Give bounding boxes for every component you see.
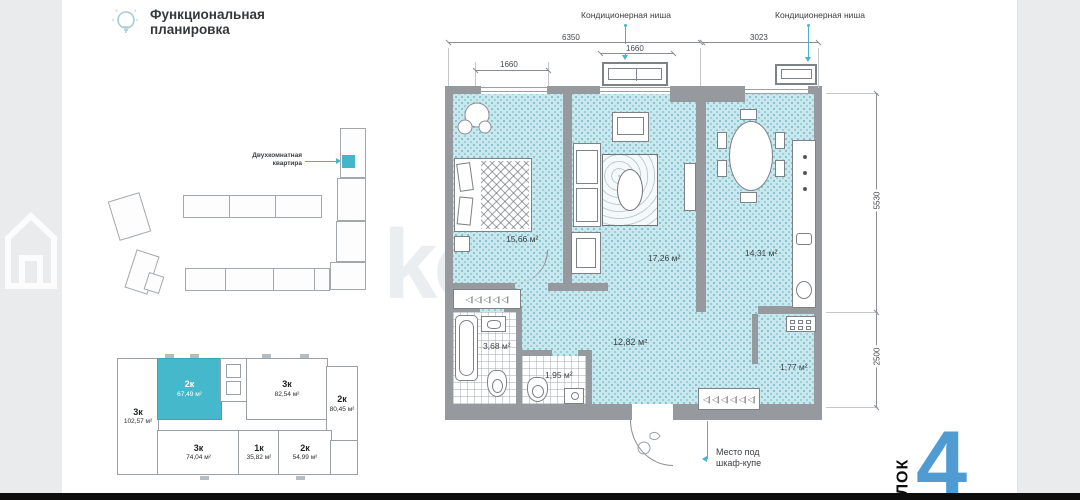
sofa xyxy=(573,143,601,227)
wardrobe-note: Место под шкаф-купе xyxy=(716,447,761,469)
dim-line-6350 xyxy=(448,42,700,43)
unit-callout-line1: Двухкомнатная xyxy=(230,152,302,160)
wall-bedroom-bottom-2 xyxy=(548,283,608,291)
lounge-chair-bottom xyxy=(571,232,601,274)
site-row-top xyxy=(183,195,322,218)
dining-chair-left-2 xyxy=(717,160,727,177)
wall-left xyxy=(445,86,453,404)
kitchen-counter xyxy=(792,140,816,308)
bathtub xyxy=(455,315,478,381)
site-tower-2 xyxy=(337,178,366,221)
ac-niche-label-1: Кондиционерная ниша xyxy=(570,10,682,20)
site-row-bottom xyxy=(185,268,330,291)
ac-leader-arrow-2 xyxy=(805,57,811,62)
left-background-strip xyxy=(0,0,62,493)
armchair-top xyxy=(612,112,649,142)
dim-5530: 5530 xyxy=(872,190,881,212)
room-area-kitchen: 14,31 м² xyxy=(745,248,777,258)
dim-3023: 3023 xyxy=(748,33,770,42)
schematic-corner-cell xyxy=(330,440,358,475)
block-number: 4 xyxy=(916,418,967,500)
wardrobe-note-arrow xyxy=(702,456,707,462)
wall-niche-left xyxy=(752,314,758,364)
wall-wc-top-1 xyxy=(522,350,552,356)
page-title: Функциональная планировка xyxy=(150,7,265,37)
wall-living-kitchen xyxy=(696,102,706,312)
dining-chair-bottom xyxy=(740,192,757,203)
schematic-unit-3k-7404: 3к 74,04 м² xyxy=(157,430,240,475)
room-area-niche: 1,77 м² xyxy=(780,362,808,372)
dim-line-1660-mid xyxy=(600,53,673,54)
wc-toilet xyxy=(527,377,548,402)
page-title-line2: планировка xyxy=(150,22,265,37)
schematic-unit-2k-6749-highlighted: 2к 67,49 м² xyxy=(157,358,222,420)
dim-1660-mid: 1660 xyxy=(624,44,646,53)
tv-console xyxy=(684,163,696,211)
site-building-a xyxy=(108,192,152,241)
dim-2500: 2500 xyxy=(872,346,881,368)
right-background-strip xyxy=(1017,0,1080,493)
callout-arrowhead xyxy=(336,158,341,164)
site-tower-1 xyxy=(340,128,366,178)
washing-machine xyxy=(564,388,584,404)
dining-table xyxy=(729,121,773,191)
ac-niche-box-2 xyxy=(775,64,817,85)
dining-chair-top xyxy=(740,109,757,120)
wardrobe-note-leader xyxy=(707,421,708,459)
ac-niche-box-1 xyxy=(602,62,668,86)
wall-bottom-left xyxy=(445,404,632,420)
schematic-unit-1k-3582: 1к 35,82 м² xyxy=(238,430,280,475)
dining-chair-right-2 xyxy=(775,160,785,177)
bottom-bar xyxy=(0,493,1080,500)
callout-leader-line xyxy=(305,161,336,162)
schematic-unit-3k-8254: 3к 82,54 м² xyxy=(246,358,328,420)
ac-leader-arrow-1 xyxy=(622,55,628,60)
site-tower-3 xyxy=(336,221,366,262)
wall-top-4 xyxy=(808,86,822,94)
room-area-wc: 1,95 м² xyxy=(545,370,573,380)
unit-callout: Двухкомнатная квартира xyxy=(230,152,302,168)
wall-top-2 xyxy=(547,86,600,94)
dim-line-3023 xyxy=(702,42,818,43)
highlighted-unit-marker xyxy=(342,155,355,168)
entrance-decor-sketch xyxy=(634,428,664,462)
site-tower-4 xyxy=(330,262,366,290)
bedroom-window xyxy=(481,87,547,92)
wall-top-3 xyxy=(670,86,745,102)
dining-chair-left-1 xyxy=(717,132,727,149)
page-title-line1: Функциональная xyxy=(150,7,265,22)
ac-niche-label-2: Кондиционерная ниша xyxy=(764,10,876,20)
bedside-table xyxy=(454,236,470,252)
schematic-unit-2k-5499: 2к 54,99 м² xyxy=(278,430,332,475)
bathroom-sink xyxy=(481,316,506,332)
dim-line-1660-left xyxy=(475,70,548,71)
wall-wc-right xyxy=(586,356,592,404)
schematic-unit-3k-10257: 3к 102,57 м² xyxy=(117,358,159,475)
dining-chair-right-1 xyxy=(775,132,785,149)
wardrobe-hall: ◁| ◁| ◁| ◁| ◁| xyxy=(453,289,521,309)
room-area-bedroom: 15,66 м² xyxy=(506,234,538,244)
kitchen-hob xyxy=(786,316,816,332)
wardrobe-entry: ◁| ◁| ◁| ◁| ◁| ◁| xyxy=(698,388,760,410)
balcony-door-window xyxy=(600,87,670,92)
house-watermark-icon xyxy=(4,200,58,290)
kitchen-window xyxy=(745,89,808,94)
unit-callout-line2: квартира xyxy=(230,160,302,168)
lightbulb-icon xyxy=(108,5,144,41)
block-label-wrap: БЛОК xyxy=(893,428,913,492)
floorplan-page: ko Функциональная планировка Двухкомнатн… xyxy=(0,0,1080,500)
plant-sketch xyxy=(455,97,497,141)
room-area-hallway: 12,82 м² xyxy=(613,337,647,347)
dim-6350: 6350 xyxy=(560,33,582,42)
schematic-elevator-core xyxy=(220,358,248,402)
rug xyxy=(602,154,658,226)
bed xyxy=(454,158,532,232)
room-area-living-room: 17,26 м² xyxy=(648,253,680,263)
wall-top-1 xyxy=(445,86,481,94)
bathroom-toilet xyxy=(487,370,507,397)
room-area-bathroom: 3,68 м² xyxy=(483,341,511,351)
dim-1660-left: 1660 xyxy=(498,60,520,69)
